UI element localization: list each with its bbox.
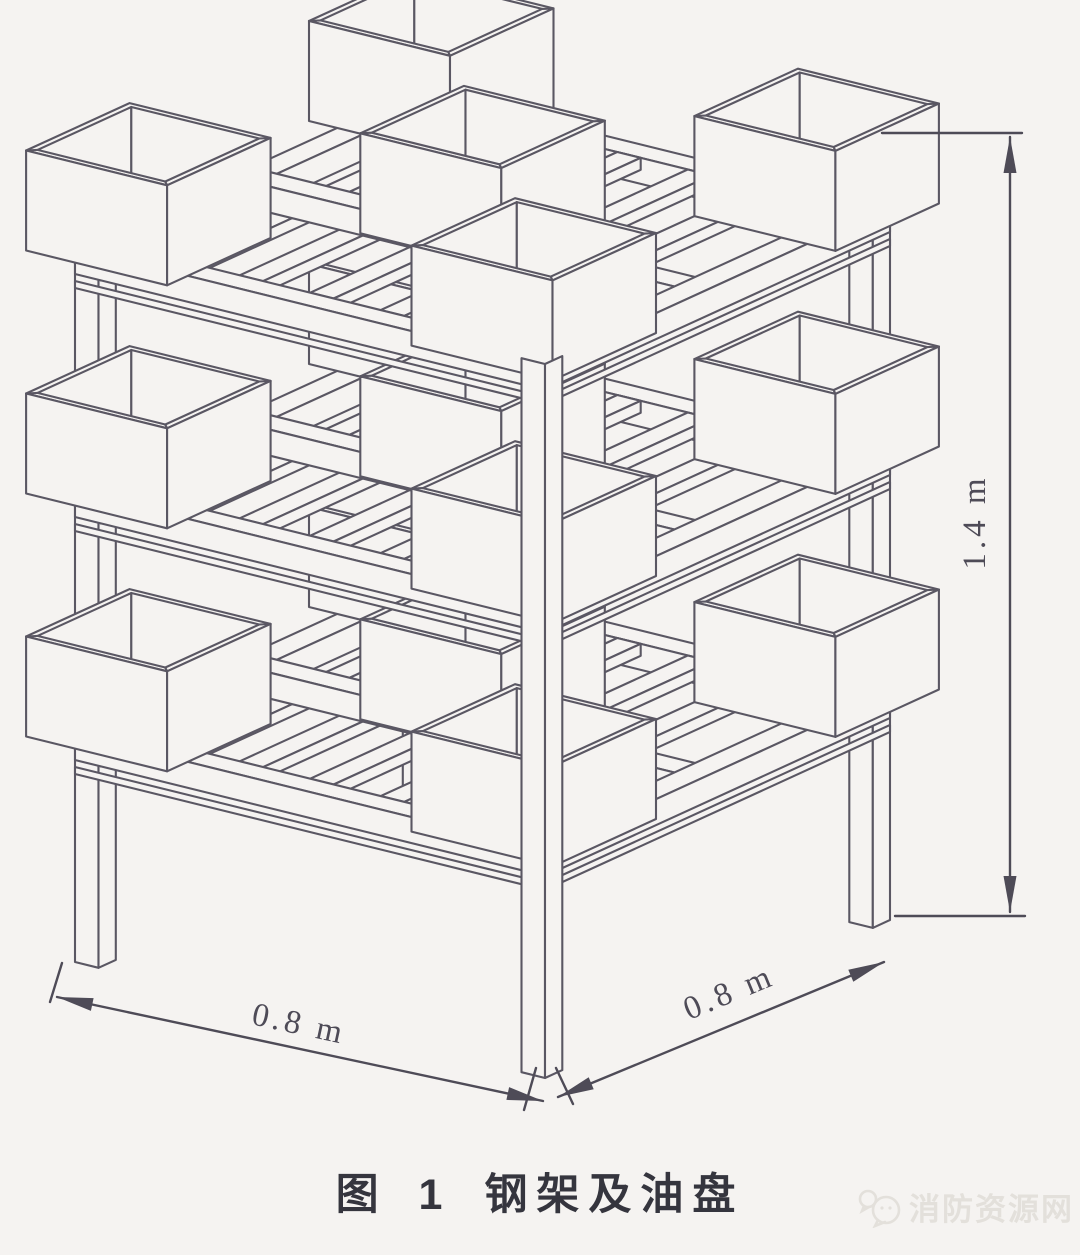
figure-page: 0.8 m 0.8 m 1.4 m 图 1钢架及油盘 消防资源网 [0, 0, 1080, 1255]
figure-number: 图 1 [336, 1171, 457, 1219]
frame-leg-front [522, 356, 563, 1078]
figure-title: 钢架及油盘 [484, 1171, 744, 1219]
dimension-label-height: 1.4 m [957, 474, 993, 569]
watermark: 消防资源网 [856, 1184, 1074, 1229]
steel-frame-diagram: 0.8 m 0.8 m 1.4 m [0, 0, 1080, 1255]
frame-leg-right [849, 206, 890, 928]
watermark-text: 消防资源网 [909, 1184, 1074, 1229]
chat-bubbles-icon [856, 1186, 904, 1228]
